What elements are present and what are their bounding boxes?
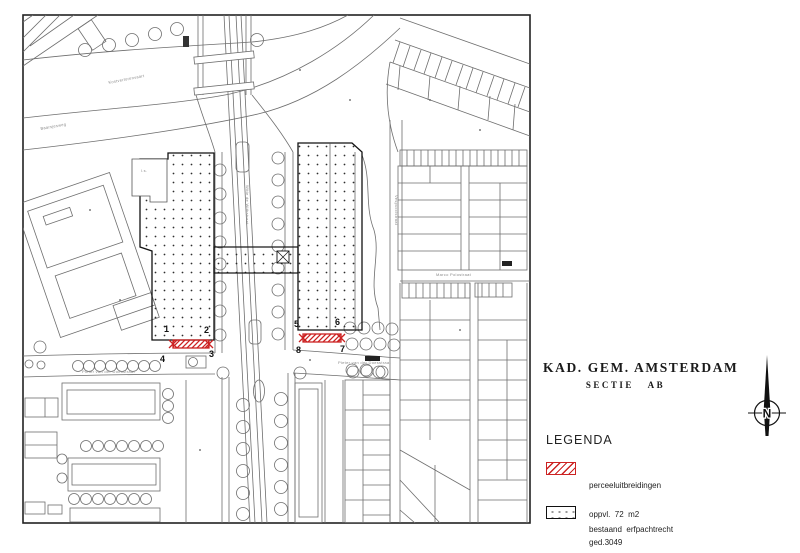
legend-heading: LEGENDA [546, 433, 613, 447]
legend-name: perceeluitbreidingen [589, 481, 661, 491]
marker-8: 8 [296, 346, 301, 355]
marker-1: 1 [164, 325, 169, 334]
north-arrow-icon: N [748, 355, 786, 436]
marker-2: 2 [204, 326, 209, 335]
compass-label: N [763, 407, 772, 421]
school-building [132, 159, 167, 202]
dot-pattern-swatch [546, 506, 576, 519]
cadastral-map-sheet: N KAD. GEM. AMSTERDAM SECTIE AB LEGENDA … [0, 0, 800, 553]
marker-5: 5 [294, 320, 299, 329]
map-drawing: N [0, 0, 800, 553]
red-strip-west [173, 340, 209, 348]
street-label-cross-left: Pieter van der Doesstraat [82, 369, 135, 374]
legend-item-leasehold: bestaand erfpachtrecht oppvl. 6260 m2 pe… [546, 506, 673, 553]
marker-7: 7 [340, 345, 345, 354]
street-label-east: Vespuccistraat [394, 195, 399, 225]
school-label: l.s. [141, 168, 147, 173]
street-label-grid: Marco Polostraat [436, 272, 471, 277]
red-strip-east [303, 334, 341, 342]
street-label-central: Witte de Withstraat [245, 185, 250, 225]
map-subtitle: SECTIE AB [543, 380, 708, 390]
red-hatch-swatch [546, 462, 576, 475]
marker-6: 6 [335, 318, 340, 327]
marker-3: 3 [209, 350, 214, 359]
connector-hut [277, 251, 289, 263]
small-building [502, 261, 512, 266]
map-title: KAD. GEM. AMSTERDAM [543, 360, 708, 376]
marker-4: 4 [160, 355, 165, 364]
small-building [183, 36, 189, 47]
street-label-cross-right: Pieter van der Doesstraat [338, 360, 391, 365]
legend-name: bestaand erfpachtrecht [589, 525, 673, 535]
